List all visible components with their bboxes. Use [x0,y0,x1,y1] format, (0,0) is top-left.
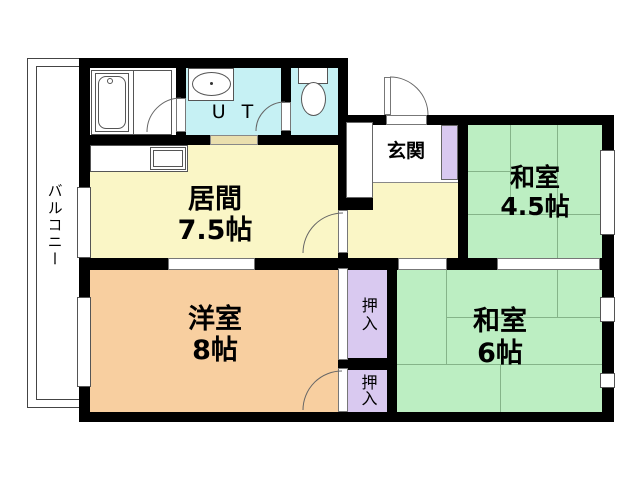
washbasin-drain [210,82,213,85]
toilet-bowl [301,82,326,116]
shoe-cabinet [441,125,458,180]
bathroom-door-leaf [176,98,186,132]
entrance-storage-cabinet [346,122,373,198]
utility-step [210,135,258,145]
tatami6-room-size: 6帖 [477,338,523,369]
living-room-size: 7.5帖 [178,215,253,246]
floorplan: バルコニー [0,0,640,480]
window-western-balcony [77,297,91,387]
bathroom-divider [133,70,134,135]
toilet-door-leaf [281,102,291,131]
window-living-balcony [77,187,91,258]
tatami45-room-label: 和室 4.5帖 [466,150,604,235]
bathtub-faucet [107,78,113,84]
utility-label: U T [198,100,272,126]
sliding-door-hall-tatami6 [398,258,447,270]
tatami45-room-name: 和室 [510,164,560,193]
western-room-label: 洋室 8帖 [90,290,340,380]
balcony-label: バルコニー [38,165,70,285]
window-tatami6-right-lower [600,373,615,388]
wall-entrance-block [341,198,373,210]
window-tatami6-right-upper [600,297,615,322]
closet-lower-label: 押入 [346,367,389,413]
wall-top [80,58,348,68]
tatami6-room-name: 和室 [473,306,527,337]
entrance-threshold [386,115,427,125]
fusuma-tatami45-tatami6 [497,258,600,270]
tatami45-room-size: 4.5帖 [500,193,569,222]
tatami6-room-label: 和室 6帖 [400,295,600,380]
wall-bottom [80,412,614,422]
entrance-door-arc [390,77,428,115]
western-room-size: 8帖 [192,335,238,366]
living-room-label: 居間 7.5帖 [90,165,340,265]
closet-upper-label: 押入 [346,282,389,348]
bathtub-inner [98,76,126,129]
entrance-label: 玄関 [370,138,442,166]
entrance-door-leaf [384,77,391,115]
western-room-name: 洋室 [188,304,242,335]
living-room-name: 居間 [188,184,242,215]
